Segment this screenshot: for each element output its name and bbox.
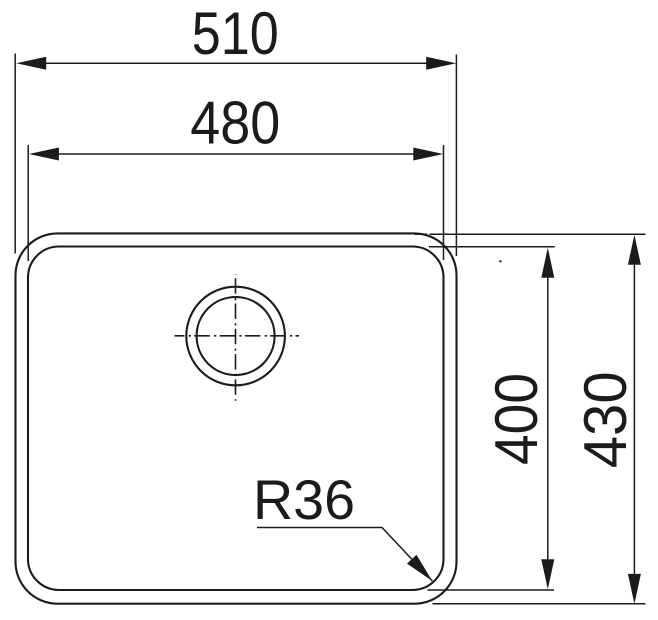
svg-text:510: 510 — [192, 0, 279, 67]
svg-text:R36: R36 — [253, 468, 355, 531]
svg-text:480: 480 — [190, 89, 280, 156]
svg-text:400: 400 — [483, 373, 550, 465]
svg-text:430: 430 — [572, 371, 639, 468]
